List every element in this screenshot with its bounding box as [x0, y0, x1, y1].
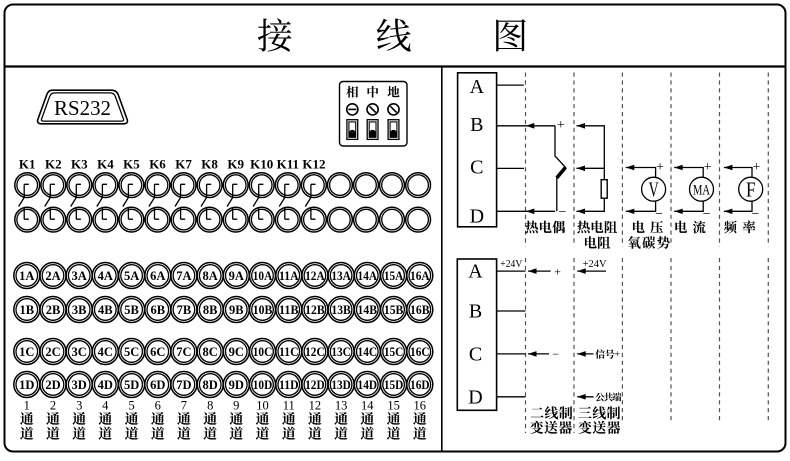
svg-text:5: 5: [128, 398, 134, 412]
svg-text:6B: 6B: [151, 303, 166, 317]
svg-text:−: −: [752, 207, 760, 222]
svg-text:7A: 7A: [176, 269, 191, 283]
svg-text:7: 7: [181, 398, 187, 412]
svg-text:2A: 2A: [45, 269, 60, 283]
svg-text:MA: MA: [693, 182, 710, 198]
svg-text:15: 15: [387, 398, 400, 412]
svg-text:+: +: [557, 118, 565, 133]
svg-text:13D: 13D: [331, 378, 351, 392]
svg-text:10B: 10B: [253, 303, 273, 317]
svg-text:9C: 9C: [229, 345, 244, 359]
svg-text:4B: 4B: [98, 303, 113, 317]
svg-text:F: F: [746, 177, 756, 201]
svg-text:12B: 12B: [305, 303, 325, 317]
svg-text:A: A: [468, 260, 483, 282]
svg-text:16: 16: [414, 398, 427, 412]
svg-text:9A: 9A: [229, 269, 244, 283]
svg-text:8C: 8C: [203, 345, 218, 359]
svg-text:11D: 11D: [279, 378, 299, 392]
svg-text:3D: 3D: [72, 378, 87, 392]
svg-text:V: V: [649, 177, 659, 201]
svg-text:16C: 16C: [410, 345, 430, 359]
svg-text:C: C: [469, 343, 482, 365]
svg-text:+: +: [704, 160, 712, 175]
svg-text:A: A: [470, 76, 485, 98]
svg-text:2D: 2D: [45, 378, 60, 392]
svg-text:K12: K12: [302, 157, 325, 172]
svg-text:4: 4: [102, 398, 109, 412]
svg-text:K9: K9: [227, 157, 244, 172]
svg-text:11: 11: [283, 398, 295, 412]
svg-text:6A: 6A: [150, 269, 165, 283]
svg-text:1C: 1C: [19, 345, 34, 359]
svg-text:3B: 3B: [72, 303, 87, 317]
svg-text:10D: 10D: [253, 378, 273, 392]
svg-text:−: −: [703, 207, 711, 222]
svg-text:1B: 1B: [20, 303, 35, 317]
svg-text:−: −: [655, 207, 663, 222]
svg-text:13C: 13C: [331, 345, 351, 359]
svg-text:2B: 2B: [46, 303, 61, 317]
svg-text:15A: 15A: [384, 269, 404, 283]
svg-text:10C: 10C: [253, 345, 273, 359]
svg-text:10: 10: [256, 398, 269, 412]
svg-text:8B: 8B: [203, 303, 218, 317]
svg-text:4C: 4C: [98, 345, 113, 359]
svg-text:9B: 9B: [229, 303, 244, 317]
svg-text:K8: K8: [201, 157, 218, 172]
svg-text:6: 6: [155, 398, 161, 412]
svg-text:B: B: [469, 300, 482, 322]
svg-text:7B: 7B: [177, 303, 192, 317]
svg-text:15C: 15C: [384, 345, 404, 359]
svg-text:3C: 3C: [72, 345, 87, 359]
svg-text:RS232: RS232: [54, 96, 111, 120]
svg-text:10A: 10A: [253, 269, 273, 283]
svg-text:D: D: [468, 386, 482, 408]
svg-text:8D: 8D: [203, 378, 218, 392]
svg-text:16A: 16A: [410, 269, 430, 283]
svg-text:1D: 1D: [19, 378, 34, 392]
svg-text:9: 9: [233, 398, 239, 412]
svg-text:+24V: +24V: [500, 259, 523, 270]
svg-text:13: 13: [335, 398, 348, 412]
svg-text:13B: 13B: [331, 303, 351, 317]
svg-text:12C: 12C: [305, 345, 325, 359]
svg-text:15B: 15B: [384, 303, 404, 317]
svg-text:7C: 7C: [176, 345, 191, 359]
svg-text:K2: K2: [45, 157, 62, 172]
svg-text:5C: 5C: [124, 345, 139, 359]
svg-text:8A: 8A: [203, 269, 218, 283]
svg-text:11C: 11C: [279, 345, 299, 359]
svg-text:D: D: [470, 205, 484, 227]
svg-text:3: 3: [76, 398, 82, 412]
svg-text:K6: K6: [149, 157, 166, 172]
svg-text:12: 12: [309, 398, 322, 412]
svg-text:15D: 15D: [384, 378, 404, 392]
svg-text:C: C: [470, 156, 483, 178]
svg-text:3A: 3A: [72, 269, 87, 283]
svg-text:K10: K10: [250, 157, 273, 172]
svg-text:11A: 11A: [279, 269, 299, 283]
svg-text:+24V: +24V: [583, 259, 608, 270]
svg-text:9D: 9D: [229, 378, 244, 392]
svg-text:6C: 6C: [150, 345, 165, 359]
svg-text:5D: 5D: [124, 378, 139, 392]
svg-text:1: 1: [24, 398, 30, 412]
svg-text:12A: 12A: [305, 269, 325, 283]
svg-text:K11: K11: [277, 157, 299, 172]
svg-text:2C: 2C: [45, 345, 60, 359]
svg-text:5B: 5B: [124, 303, 139, 317]
svg-text:+: +: [614, 350, 620, 361]
svg-text:14B: 14B: [358, 303, 378, 317]
svg-text:−: −: [552, 347, 559, 361]
svg-text:14: 14: [361, 398, 374, 412]
svg-text:+: +: [554, 264, 561, 278]
svg-text:14C: 14C: [358, 345, 378, 359]
svg-text:4A: 4A: [98, 269, 113, 283]
svg-text:−: −: [559, 205, 567, 220]
svg-text:K1: K1: [19, 157, 36, 172]
svg-text:+: +: [753, 160, 761, 175]
svg-text:K3: K3: [71, 157, 88, 172]
svg-text:4D: 4D: [98, 378, 113, 392]
svg-text:16D: 16D: [410, 378, 430, 392]
svg-text:K5: K5: [123, 157, 140, 172]
svg-text:14A: 14A: [358, 269, 378, 283]
svg-text:6D: 6D: [150, 378, 165, 392]
svg-text:+: +: [656, 160, 664, 175]
svg-text:16B: 16B: [410, 303, 430, 317]
svg-text:2: 2: [50, 398, 56, 412]
svg-text:14D: 14D: [358, 378, 378, 392]
svg-text:B: B: [470, 114, 483, 136]
svg-text:5A: 5A: [124, 269, 139, 283]
svg-text:1A: 1A: [19, 269, 34, 283]
svg-text:13A: 13A: [331, 269, 351, 283]
svg-text:11B: 11B: [279, 303, 299, 317]
svg-text:8: 8: [207, 398, 213, 412]
svg-text:K7: K7: [175, 157, 192, 172]
svg-text:7D: 7D: [176, 378, 191, 392]
svg-text:12D: 12D: [305, 378, 325, 392]
svg-text:K4: K4: [97, 157, 114, 172]
